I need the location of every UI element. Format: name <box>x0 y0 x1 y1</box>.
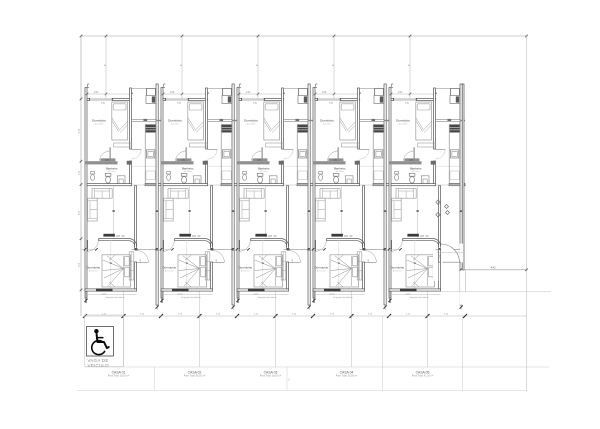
svg-text:Área Total: 38,50 m²: Área Total: 38,50 m² <box>108 375 130 378</box>
svg-text:Área Total: 38,50 m²: Área Total: 38,50 m² <box>184 375 206 378</box>
svg-text:Área Total: 41,20 m²: Área Total: 41,20 m² <box>412 375 434 378</box>
svg-text:1,2: 1,2 <box>289 378 291 381</box>
svg-text:Área Total: 38,50 m²: Área Total: 38,50 m² <box>336 375 358 378</box>
svg-text:Área Total: 38,50 m²: Área Total: 38,50 m² <box>260 375 282 378</box>
svg-text:4,42: 4,42 <box>490 265 496 269</box>
